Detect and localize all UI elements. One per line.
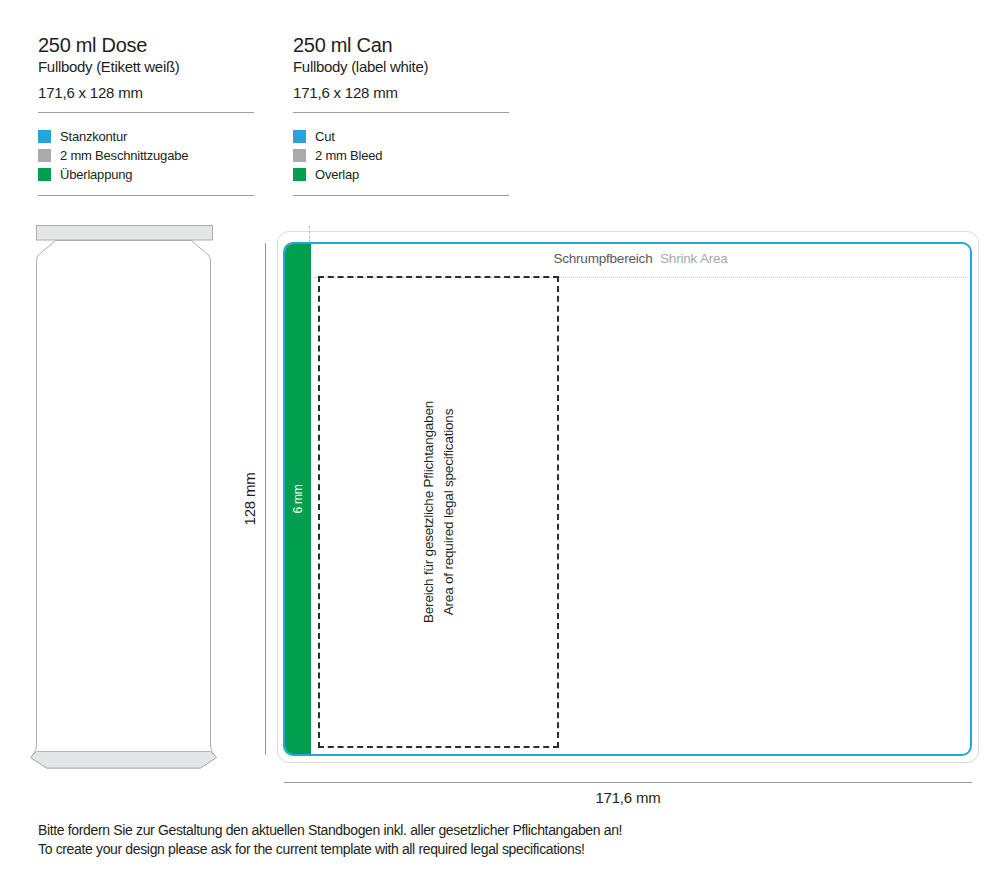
height-dimension-line	[265, 243, 266, 755]
legend-row-cut-de: Stanzkontur	[38, 129, 127, 143]
spec-dimensions-de: 171,6 x 128 mm	[38, 84, 143, 101]
legend-label: 2 mm Beschnittzugabe	[60, 148, 188, 163]
shrink-area-label-en: Shrink Area	[660, 251, 728, 266]
overlap-extension-tick	[309, 226, 310, 243]
overlap-color-swatch	[293, 168, 306, 181]
overlap-width-label: 6 mm	[291, 484, 305, 513]
cut-color-swatch	[293, 130, 306, 143]
divider	[293, 112, 509, 113]
legend-label: Stanzkontur	[60, 129, 127, 144]
footer-note-en: To create your design please ask for the…	[38, 841, 585, 857]
spec-subtitle-en: Fullbody (label white)	[293, 58, 428, 75]
spec-column-en: 250 ml Can Fullbody (label white) 171,6 …	[293, 34, 509, 204]
bleed-color-swatch	[38, 149, 51, 162]
shrink-area-label-de: Schrumpfbereich	[553, 251, 652, 266]
legend-label: Überlappung	[60, 167, 132, 182]
legal-area-label-de: Bereich für gesetzliche Pflichtangaben	[418, 401, 438, 623]
divider	[38, 195, 254, 196]
spec-column-de: 250 ml Dose Fullbody (Etikett weiß) 171,…	[38, 34, 254, 204]
legend-label: Overlap	[315, 167, 359, 182]
legal-area-label: Bereich für gesetzliche Pflichtangaben A…	[418, 401, 459, 623]
legend-row-bleed-en: 2 mm Bleed	[293, 148, 382, 162]
can-lid	[37, 226, 213, 241]
legend-row-overlap-en: Overlap	[293, 167, 359, 181]
spec-title-de: 250 ml Dose	[38, 34, 147, 57]
width-dimension-line	[284, 782, 972, 783]
overlap-color-swatch	[38, 168, 51, 181]
divider	[293, 195, 509, 196]
legend-row-cut-en: Cut	[293, 129, 335, 143]
legend-row-overlap-de: Überlappung	[38, 167, 132, 181]
overlap-strip: 6 mm	[285, 244, 311, 754]
height-dimension-label: 128 mm	[241, 473, 258, 526]
bleed-color-swatch	[293, 149, 306, 162]
cut-color-swatch	[38, 130, 51, 143]
divider	[38, 112, 254, 113]
footer-note-de: Bitte fordern Sie zur Gestaltung den akt…	[38, 822, 622, 838]
spec-dimensions-en: 171,6 x 128 mm	[293, 84, 398, 101]
spec-subtitle-de: Fullbody (Etikett weiß)	[38, 58, 179, 75]
spec-title-en: 250 ml Can	[293, 34, 392, 57]
legend-label: 2 mm Bleed	[315, 148, 382, 163]
can-bottom-rim	[31, 752, 217, 769]
legal-area-box: Bereich für gesetzliche Pflichtangaben A…	[318, 276, 559, 748]
page: { "columns": { "de": { "title": "250 ml …	[0, 0, 1000, 880]
width-dimension-label: 171,6 mm	[595, 789, 660, 806]
legend-row-bleed-de: 2 mm Beschnittzugabe	[38, 148, 188, 162]
shrink-area-label: Schrumpfbereich Shrink Area	[311, 251, 970, 266]
legal-area-label-en: Area of required legal specifications	[439, 401, 459, 623]
legend-label: Cut	[315, 129, 335, 144]
cut-outline: 6 mm Schrumpfbereich Shrink Area Bereich…	[283, 242, 972, 756]
can-body	[31, 241, 217, 769]
